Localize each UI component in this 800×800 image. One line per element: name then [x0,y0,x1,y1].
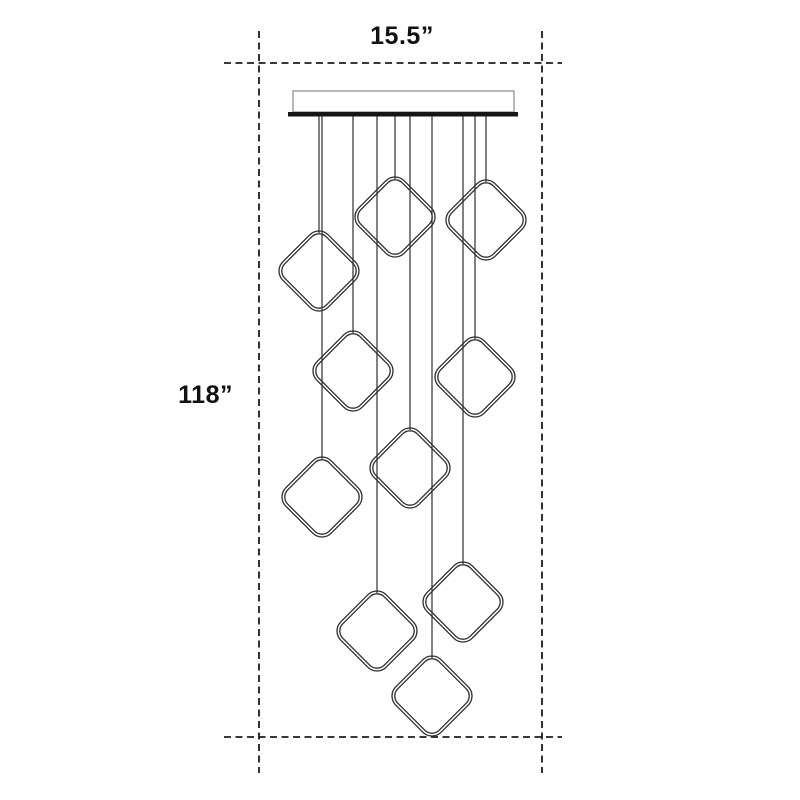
pendant-ring-inner [391,655,474,738]
pendant-light [308,326,399,417]
pendant-ring-outer [308,326,399,417]
pendant-ring-inner [369,427,452,510]
pendant-ring-inner [281,456,364,539]
pendant-ring-outer [441,175,532,266]
pendant-ring-inner [278,230,361,313]
canopy-plate [288,112,518,117]
pendant-light [441,175,532,266]
pendant-light [430,332,521,423]
pendant-ring-inner [434,336,517,419]
pendant-ring-outer [365,423,456,514]
pendant-ring-inner [336,590,419,673]
pendant-light [350,172,441,263]
pendant-ring-outer [430,332,521,423]
pendant-ring-inner [354,176,437,259]
pendant-light [274,226,365,317]
pendant-light [332,586,423,677]
pendant-ring-outer [387,651,478,742]
pendant-light [387,651,478,742]
pendant-light [418,557,509,648]
pendant-ring-outer [277,452,368,543]
height-dimension-label: 118” [123,381,233,409]
pendant-ring-outer [418,557,509,648]
pendant-ring-inner [422,561,505,644]
pendant-ring-inner [312,330,395,413]
pendant-light [365,423,456,514]
width-dimension-label: 15.5” [302,22,502,50]
canopy-body [293,91,514,112]
pendant-ring-outer [332,586,423,677]
pendant-ring-outer [350,172,441,263]
dimension-diagram: 15.5” 118” [0,0,800,800]
pendant-light [277,452,368,543]
pendant-ring-inner [445,179,528,262]
diagram-canvas [0,0,800,800]
pendant-ring-outer [274,226,365,317]
